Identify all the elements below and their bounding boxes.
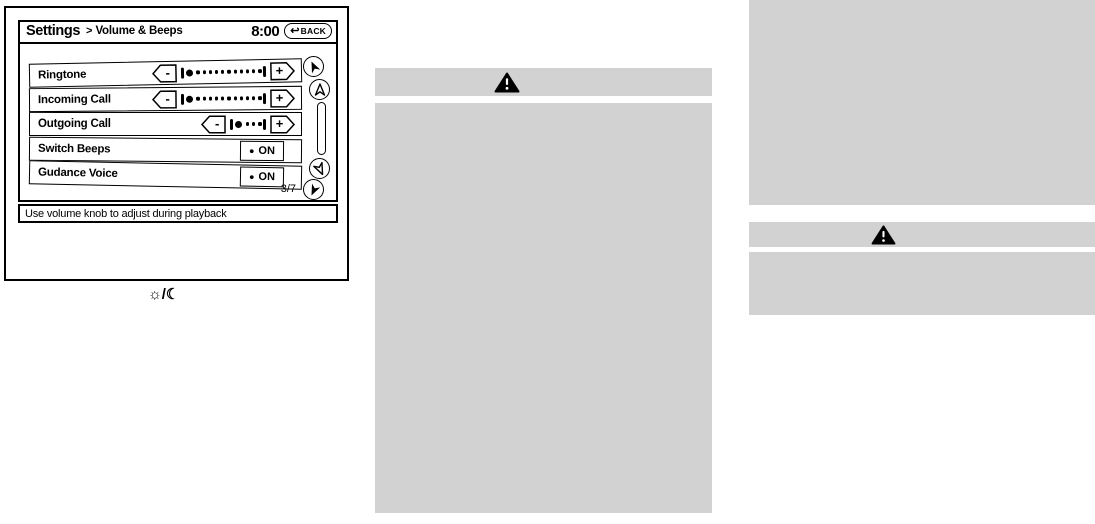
level-dot bbox=[258, 96, 261, 99]
warning-triangle-icon bbox=[871, 225, 896, 245]
on-toggle-label: ON bbox=[258, 171, 275, 183]
warning-header-middle bbox=[375, 68, 712, 96]
on-toggle-button[interactable]: ●ON bbox=[240, 140, 284, 160]
minus-sign: - bbox=[165, 66, 170, 79]
level-dot bbox=[246, 122, 249, 125]
on-indicator-dot: ● bbox=[249, 172, 255, 181]
level-end-cap bbox=[263, 65, 266, 76]
level-dot-large bbox=[235, 121, 242, 128]
settings-row-switch-beeps[interactable]: Switch Beeps●ON bbox=[29, 136, 302, 163]
volume-level-indicator bbox=[181, 65, 266, 78]
level-dot bbox=[240, 70, 243, 73]
minus-tag-shape bbox=[152, 89, 177, 108]
back-arrow-icon: ↩ bbox=[290, 26, 299, 37]
redacted-text-block-right-bottom bbox=[749, 252, 1095, 315]
level-dot bbox=[252, 96, 255, 99]
plus-sign: + bbox=[276, 64, 284, 77]
level-dot bbox=[203, 71, 206, 74]
redacted-text-block-right-top bbox=[749, 0, 1095, 205]
breadcrumb-settings: Settings bbox=[26, 23, 80, 39]
level-dot bbox=[246, 70, 249, 73]
level-dot bbox=[246, 96, 249, 99]
settings-list: Ringtone-+Incoming Call-+Outgoing Call-+… bbox=[29, 61, 302, 187]
level-dot bbox=[227, 96, 230, 99]
minus-sign: - bbox=[165, 91, 169, 104]
volume-level-indicator bbox=[230, 119, 266, 130]
up-arrow-icon bbox=[312, 82, 328, 98]
level-dot bbox=[252, 70, 255, 73]
volume-down-button[interactable]: - bbox=[201, 115, 226, 134]
row-controls: -+ bbox=[152, 61, 295, 83]
down-arrow-icon bbox=[309, 158, 330, 179]
row-label: Gudance Voice bbox=[38, 166, 118, 180]
plus-sign: + bbox=[276, 117, 284, 130]
row-label: Ringtone bbox=[38, 69, 86, 82]
level-dot bbox=[234, 70, 237, 73]
page-indicator: 3/7 bbox=[281, 183, 296, 195]
back-button[interactable]: ↩ BACK bbox=[284, 23, 332, 39]
row-controls: -+ bbox=[201, 115, 295, 134]
device-screen: Settings > Volume & Beeps 8:00 ↩ BACK Ri… bbox=[18, 20, 338, 202]
row-controls: -+ bbox=[152, 88, 295, 108]
breadcrumb-separator: > bbox=[86, 25, 92, 37]
page-title: Volume & Beeps bbox=[95, 25, 182, 37]
settings-screen-figure: Settings > Volume & Beeps 8:00 ↩ BACK Ri… bbox=[4, 6, 349, 281]
level-dot bbox=[221, 96, 224, 99]
level-dot-large bbox=[186, 95, 193, 102]
warning-triangle-icon bbox=[494, 72, 520, 93]
on-toggle-button[interactable]: ●ON bbox=[240, 166, 284, 187]
on-toggle-label: ON bbox=[258, 144, 275, 156]
double-up-arrow-icon bbox=[303, 56, 324, 77]
plus-sign: + bbox=[276, 91, 284, 104]
level-end-cap bbox=[263, 92, 266, 103]
level-dot bbox=[252, 122, 255, 125]
level-dot bbox=[221, 70, 224, 73]
scroll-up-button[interactable] bbox=[309, 79, 330, 100]
scrollbar[interactable] bbox=[317, 102, 326, 155]
minus-tag-shape bbox=[201, 115, 226, 134]
settings-row-ringtone[interactable]: Ringtone-+ bbox=[29, 58, 302, 87]
volume-up-button[interactable]: + bbox=[270, 61, 295, 80]
redacted-text-block-middle bbox=[375, 103, 712, 513]
manual-page: Settings > Volume & Beeps 8:00 ↩ BACK Ri… bbox=[0, 0, 1095, 524]
level-dot bbox=[215, 96, 218, 99]
level-dot-large bbox=[186, 69, 193, 76]
scroll-down-button[interactable] bbox=[309, 158, 330, 179]
on-indicator-dot: ● bbox=[249, 146, 255, 155]
row-label: Incoming Call bbox=[38, 93, 111, 106]
level-end-cap bbox=[263, 119, 266, 130]
row-label: Switch Beeps bbox=[38, 142, 110, 155]
volume-down-button[interactable]: - bbox=[152, 63, 177, 82]
level-dot bbox=[215, 70, 218, 73]
level-dot bbox=[227, 70, 230, 73]
settings-row-gudance-voice[interactable]: Gudance Voice●ON bbox=[29, 160, 302, 189]
level-dot bbox=[203, 97, 206, 100]
screen-titlebar: Settings > Volume & Beeps 8:00 ↩ BACK bbox=[20, 22, 336, 44]
double-down-arrow-icon bbox=[303, 179, 324, 200]
scroll-page-up-button[interactable] bbox=[303, 56, 324, 77]
status-text: Use volume knob to adjust during playbac… bbox=[25, 208, 227, 220]
level-dot bbox=[209, 70, 212, 73]
status-bar: Use volume knob to adjust during playbac… bbox=[18, 204, 338, 223]
level-dot bbox=[196, 97, 199, 100]
level-dot bbox=[258, 122, 261, 125]
level-dot bbox=[196, 71, 199, 74]
level-dot bbox=[240, 96, 243, 99]
level-dot bbox=[258, 69, 261, 72]
warning-header-right bbox=[749, 222, 1095, 247]
level-end-cap bbox=[230, 119, 233, 130]
back-button-label: BACK bbox=[301, 26, 326, 36]
level-dot bbox=[209, 97, 212, 100]
volume-up-button[interactable]: + bbox=[270, 115, 295, 134]
volume-level-indicator bbox=[181, 92, 266, 104]
level-end-cap bbox=[181, 67, 184, 78]
minus-sign: - bbox=[215, 117, 219, 130]
level-dot bbox=[234, 96, 237, 99]
row-controls: ●ON bbox=[240, 140, 295, 161]
row-label: Outgoing Call bbox=[38, 118, 111, 130]
day-night-icon: ☼/☾ bbox=[148, 285, 179, 303]
settings-row-outgoing-call[interactable]: Outgoing Call-+ bbox=[29, 112, 302, 136]
volume-down-button[interactable]: - bbox=[152, 89, 177, 108]
volume-up-button[interactable]: + bbox=[270, 88, 295, 107]
settings-row-incoming-call[interactable]: Incoming Call-+ bbox=[29, 85, 302, 111]
scroll-page-down-button[interactable] bbox=[303, 179, 324, 200]
level-end-cap bbox=[181, 93, 184, 104]
clock: 8:00 bbox=[251, 23, 279, 40]
